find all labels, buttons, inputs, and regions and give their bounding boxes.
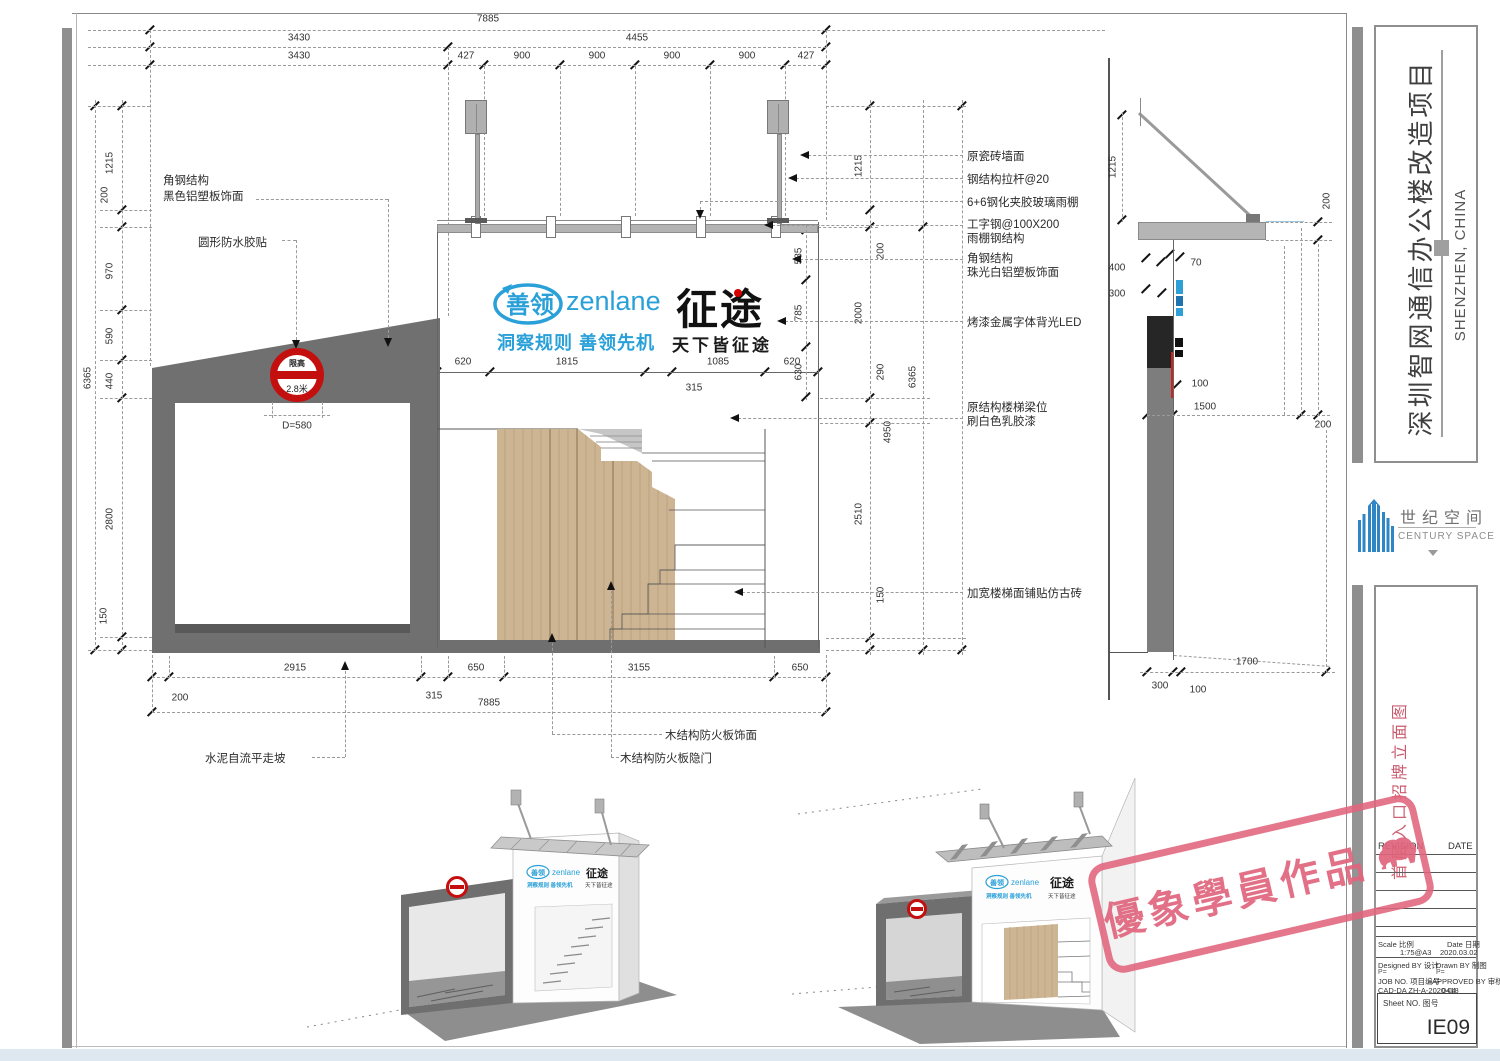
limit-sign-text-top: 限高 [277, 358, 317, 369]
dim-tick [1141, 284, 1151, 294]
dim-label: 900 [514, 51, 531, 62]
zenlane-en-text: zenlane [566, 286, 661, 317]
column-dark-panel [1147, 316, 1173, 368]
dim-ext-line [826, 650, 966, 651]
dim-ext-line [169, 656, 170, 677]
dim-label: 100 [1192, 379, 1209, 390]
drawing-sheet: { "sheet": { "project_title": "深圳智网通信办公楼… [0, 0, 1500, 1061]
dim-label: 150 [876, 587, 887, 604]
dim-ext-line [448, 47, 449, 316]
leader-arrow [341, 657, 349, 670]
anchor-plate-3d [511, 790, 521, 805]
dim-label: 1700 [1236, 657, 1258, 668]
dim-ext-line [635, 66, 636, 216]
sign-letter-edge [1176, 280, 1183, 294]
column-gray [1147, 368, 1173, 652]
dim-ext-line [100, 227, 152, 228]
callout-label: 角钢结构 [163, 172, 209, 188]
project-location: SHENZHEN, CHINA [1452, 155, 1470, 375]
sheet-no-value: IE09 [1427, 1016, 1470, 1040]
dim-ext-line [88, 106, 150, 107]
leader-line [312, 757, 345, 758]
leader-line [767, 225, 963, 226]
leader-arrow [607, 577, 615, 590]
dim-label: 2800 [105, 508, 116, 530]
bottom-strip [0, 1049, 1500, 1061]
dim-label: 3155 [628, 663, 650, 674]
dim-label: 427 [798, 51, 815, 62]
logo-text-small: 善领 [531, 868, 545, 877]
leader-line [611, 757, 619, 758]
callout-label: 雨棚钢结构 [967, 230, 1025, 246]
callout-label: 加宽楼梯面铺贴仿古砖 [967, 585, 1082, 601]
leader-arrow [773, 317, 786, 325]
titleblock-rule-marker [1434, 240, 1449, 256]
sheet-no-box: Sheet NO. 图号 IE09 [1377, 993, 1477, 1044]
tower-side [619, 833, 639, 1001]
field-label: Designed BY 设计 [1378, 960, 1439, 971]
red-trim-line [1171, 352, 1173, 398]
dim-line [88, 47, 826, 48]
dim-ext-line [484, 66, 485, 216]
field-label: P= [1436, 969, 1445, 976]
dim-label: 970 [105, 263, 116, 280]
callout-label: 珠光白铝塑板饰面 [967, 264, 1059, 280]
dim-label: 300 [1109, 289, 1126, 300]
sign-letter-edge [1175, 350, 1183, 357]
dim-ext-line [774, 656, 775, 677]
dim-line [1122, 112, 1123, 222]
dim-line [122, 100, 123, 650]
table-line [1376, 957, 1476, 958]
sheet-no-label: Sheet NO. 图号 [1383, 998, 1439, 1009]
dim-label: 1500 [1194, 402, 1216, 413]
callout-label: 刷白色乳胶漆 [967, 413, 1036, 429]
dim-tick [1156, 257, 1166, 267]
callout-label: 木结构防火板饰面 [665, 727, 757, 743]
dim-ext-line [1326, 430, 1327, 672]
dim-label: 1085 [707, 357, 729, 368]
dim-label: 4455 [626, 33, 648, 44]
date-header: DATE [1448, 841, 1473, 852]
perspective-view-left: 善领 zenlane 征途 洞察规则 善领先机 天下皆征途 [305, 775, 715, 1057]
century-logo-cn: 世纪空间 [1400, 504, 1488, 528]
garage-opening [175, 403, 410, 632]
dim-ext-line [448, 656, 449, 677]
dim-ext-line [421, 656, 422, 677]
dim-line [264, 415, 330, 416]
dim-ext-line [818, 227, 878, 228]
dim-label: 900 [739, 51, 756, 62]
zenlane-cn-text: 善领 [506, 291, 554, 319]
dim-line [870, 100, 871, 655]
dim-ext-line [504, 656, 505, 677]
leader-line [737, 592, 963, 593]
dim-label: 7885 [478, 698, 500, 709]
tie-rod [1138, 112, 1256, 221]
dim-line [923, 100, 924, 655]
leader-arrow [796, 151, 809, 159]
leader-arrow [784, 174, 797, 182]
dim-label: 1215 [1108, 156, 1119, 178]
logo-text-small: 天下皆征途 [585, 881, 613, 889]
dim-label: 590 [105, 328, 116, 345]
dim-label: 650 [792, 663, 809, 674]
leader-line [700, 201, 963, 202]
dim-label: 1215 [854, 155, 865, 177]
dim-label: 6365 [908, 366, 919, 388]
dim-label: 4950 [883, 421, 894, 443]
sign-letter-edge [1176, 308, 1183, 316]
zhengtu-slogan: 天下皆征途 [672, 331, 772, 356]
logo-text-small: zenlane [1011, 878, 1040, 887]
guide-line [792, 986, 890, 994]
elephant-icon [1370, 827, 1422, 878]
opening-sill [175, 624, 410, 633]
canopy-clip [621, 216, 631, 238]
leader-line [552, 638, 553, 734]
dim-label: 650 [468, 663, 485, 674]
dim-label: 100 [1190, 685, 1207, 696]
sign-letter-edge [1175, 338, 1183, 347]
dim-ext-line [826, 30, 827, 220]
leader-line [700, 201, 701, 210]
dim-label: 200 [876, 243, 887, 260]
dim-label: 200 [1315, 420, 1332, 431]
logo-text-small: zenlane [552, 868, 581, 877]
dim-line [437, 372, 818, 373]
field-value: 2020.03.02 [1440, 948, 1478, 957]
leader-line [256, 199, 388, 200]
frame-top-line [72, 13, 1346, 14]
canopy-slab-section [1138, 222, 1266, 240]
dim-ext-line [1266, 240, 1332, 241]
canopy-clip [546, 216, 556, 238]
dim-ext-line [1266, 222, 1332, 223]
callout-label: 烤漆金属字体背光LED [967, 314, 1081, 330]
logo-text-small: 洞察规则 善领先机 [527, 881, 573, 889]
callout-label: 圆形防水胶贴 [198, 234, 267, 250]
dim-label: 1215 [105, 152, 116, 174]
dim-line [95, 100, 96, 650]
dim-label: 1815 [556, 357, 578, 368]
zenlane-slogan: 洞察规则 善领先机 [497, 329, 655, 355]
leader-arrow [548, 629, 556, 642]
dim-label: 290 [876, 364, 887, 381]
zhengtu-logo-text: 征途 [676, 276, 764, 337]
anchor-plate [767, 100, 789, 134]
dim-label: 200 [100, 187, 111, 204]
leader-arrow [730, 588, 743, 596]
dim-line [152, 712, 826, 713]
dim-label: 70 [1190, 258, 1201, 269]
dim-ext-line [826, 106, 966, 107]
dim-label: 427 [458, 51, 475, 62]
leader-line [282, 240, 296, 241]
hanger-rod-3d [517, 801, 531, 839]
logo-divider [1398, 527, 1476, 528]
dim-ext-line [785, 66, 786, 216]
dim-label: 900 [589, 51, 606, 62]
dim-label: 400 [1109, 263, 1126, 274]
sign-face-line [1173, 240, 1174, 660]
dim-line [1147, 415, 1330, 416]
leader-line [733, 418, 963, 419]
titleblock-bar-top [1352, 27, 1363, 463]
guide-line [798, 789, 982, 814]
height-limit-sign: 限高 2.8米 [270, 348, 324, 402]
dim-label: 2510 [854, 503, 865, 525]
dim-label: 6365 [83, 367, 94, 389]
zenlane-logo: 善领 [492, 282, 564, 326]
dim-line [152, 677, 826, 678]
side-wall-line [1108, 58, 1110, 700]
floor-line [1108, 652, 1148, 653]
field-label: P= [1378, 969, 1387, 976]
dim-label: 315 [426, 691, 443, 702]
no-entry-icon [276, 371, 318, 379]
dim-ext-line [820, 398, 930, 399]
anchor-plate-3d [595, 799, 604, 813]
frame-left-bar [62, 28, 72, 1048]
leader-arrow [384, 338, 392, 351]
dim-label: 785 [794, 305, 805, 322]
dim-line [1140, 672, 1335, 673]
stair-opening [535, 904, 612, 991]
dim-label: 200 [1322, 193, 1333, 210]
field-value: 1:75@A3 [1400, 948, 1431, 957]
callout-label: 原瓷砖墙面 [967, 148, 1025, 164]
dim-ext-line [820, 423, 930, 424]
dim-ext-line [1301, 228, 1302, 415]
logo-text-small: 征途 [1050, 875, 1075, 890]
callout-label: 黑色铝塑板饰面 [163, 188, 244, 204]
callout-label: 钢结构拉杆@20 [967, 171, 1049, 187]
leader-line [296, 240, 297, 340]
logo-text-small: 洞察规则 善领先机 [986, 892, 1032, 900]
dim-label: 440 [105, 373, 116, 390]
dim-label: 900 [664, 51, 681, 62]
logo-text-small: 天下皆征途 [1048, 892, 1076, 900]
building-icon [1352, 498, 1396, 556]
dim-label: 630 [794, 364, 805, 381]
leader-line [780, 321, 963, 322]
chevron-down-icon [1428, 550, 1438, 561]
century-logo-en: CENTURY SPACE [1398, 531, 1495, 542]
anchor-plate [465, 100, 487, 134]
leader-line [795, 259, 963, 260]
leader-arrow [788, 255, 801, 263]
leader-line [611, 586, 612, 757]
leader-arrow [726, 414, 739, 422]
table-line [1376, 926, 1476, 927]
dim-ext-line [1318, 244, 1319, 415]
callout-label: 水泥自流平走坡 [205, 750, 286, 766]
dim-tick [1157, 288, 1167, 298]
dim-ext-line [826, 638, 966, 639]
leader-line [791, 178, 963, 179]
callout-label: 木结构防火板隐门 [620, 750, 712, 766]
dim-ext-line [560, 66, 561, 216]
leader-line [552, 734, 662, 735]
dim-label: 2915 [284, 663, 306, 674]
dim-line [88, 65, 826, 66]
leader-arrow [760, 221, 773, 229]
leader-line [388, 199, 389, 338]
zhengtu-red-dot [734, 289, 742, 297]
dim-label: 3430 [288, 33, 310, 44]
dim-label: 150 [99, 608, 110, 625]
hanger-rod [475, 134, 480, 224]
stair-section [430, 395, 830, 660]
logo-text-small: 善领 [990, 878, 1004, 887]
dim-label: 315 [686, 383, 703, 394]
dim-label: D=580 [282, 421, 312, 432]
frame-left-line [76, 13, 77, 1048]
sign-letter-edge [1176, 296, 1183, 306]
hanger-rod [777, 134, 782, 224]
rod-anchor-line [1140, 98, 1141, 126]
table-line [1376, 936, 1476, 937]
rod-foot-plate [465, 218, 487, 223]
dim-label: 3430 [288, 51, 310, 62]
limit-sign-text-bottom: 2.8米 [277, 382, 317, 395]
dim-tick [1175, 252, 1185, 262]
dim-label: 620 [455, 357, 472, 368]
dim-ext-line [100, 210, 152, 211]
dim-ext-line [1284, 246, 1285, 415]
dim-line [962, 100, 963, 655]
dim-line [806, 225, 807, 400]
callout-label: 6+6钢化夹胶玻璃雨棚 [967, 194, 1079, 210]
rod-bracket [1246, 214, 1260, 222]
logo-text-small: 征途 [586, 866, 609, 880]
dim-line [88, 30, 1105, 31]
project-title: 深圳智网通信办公楼改造项目 [1401, 28, 1429, 468]
dim-label: 300 [1152, 681, 1169, 692]
dim-tick [1141, 253, 1151, 263]
leader-line [803, 155, 963, 156]
dim-label: 7885 [477, 14, 499, 25]
dim-ext-line [710, 66, 711, 216]
dim-label: 200 [172, 693, 189, 704]
leader-arrow [696, 210, 704, 223]
dim-ext-line [152, 655, 153, 712]
dim-ext-line [826, 655, 827, 712]
anchor-plate-3d [980, 804, 989, 819]
anchor-plate-3d [1074, 792, 1083, 807]
guide-line [307, 1009, 405, 1027]
